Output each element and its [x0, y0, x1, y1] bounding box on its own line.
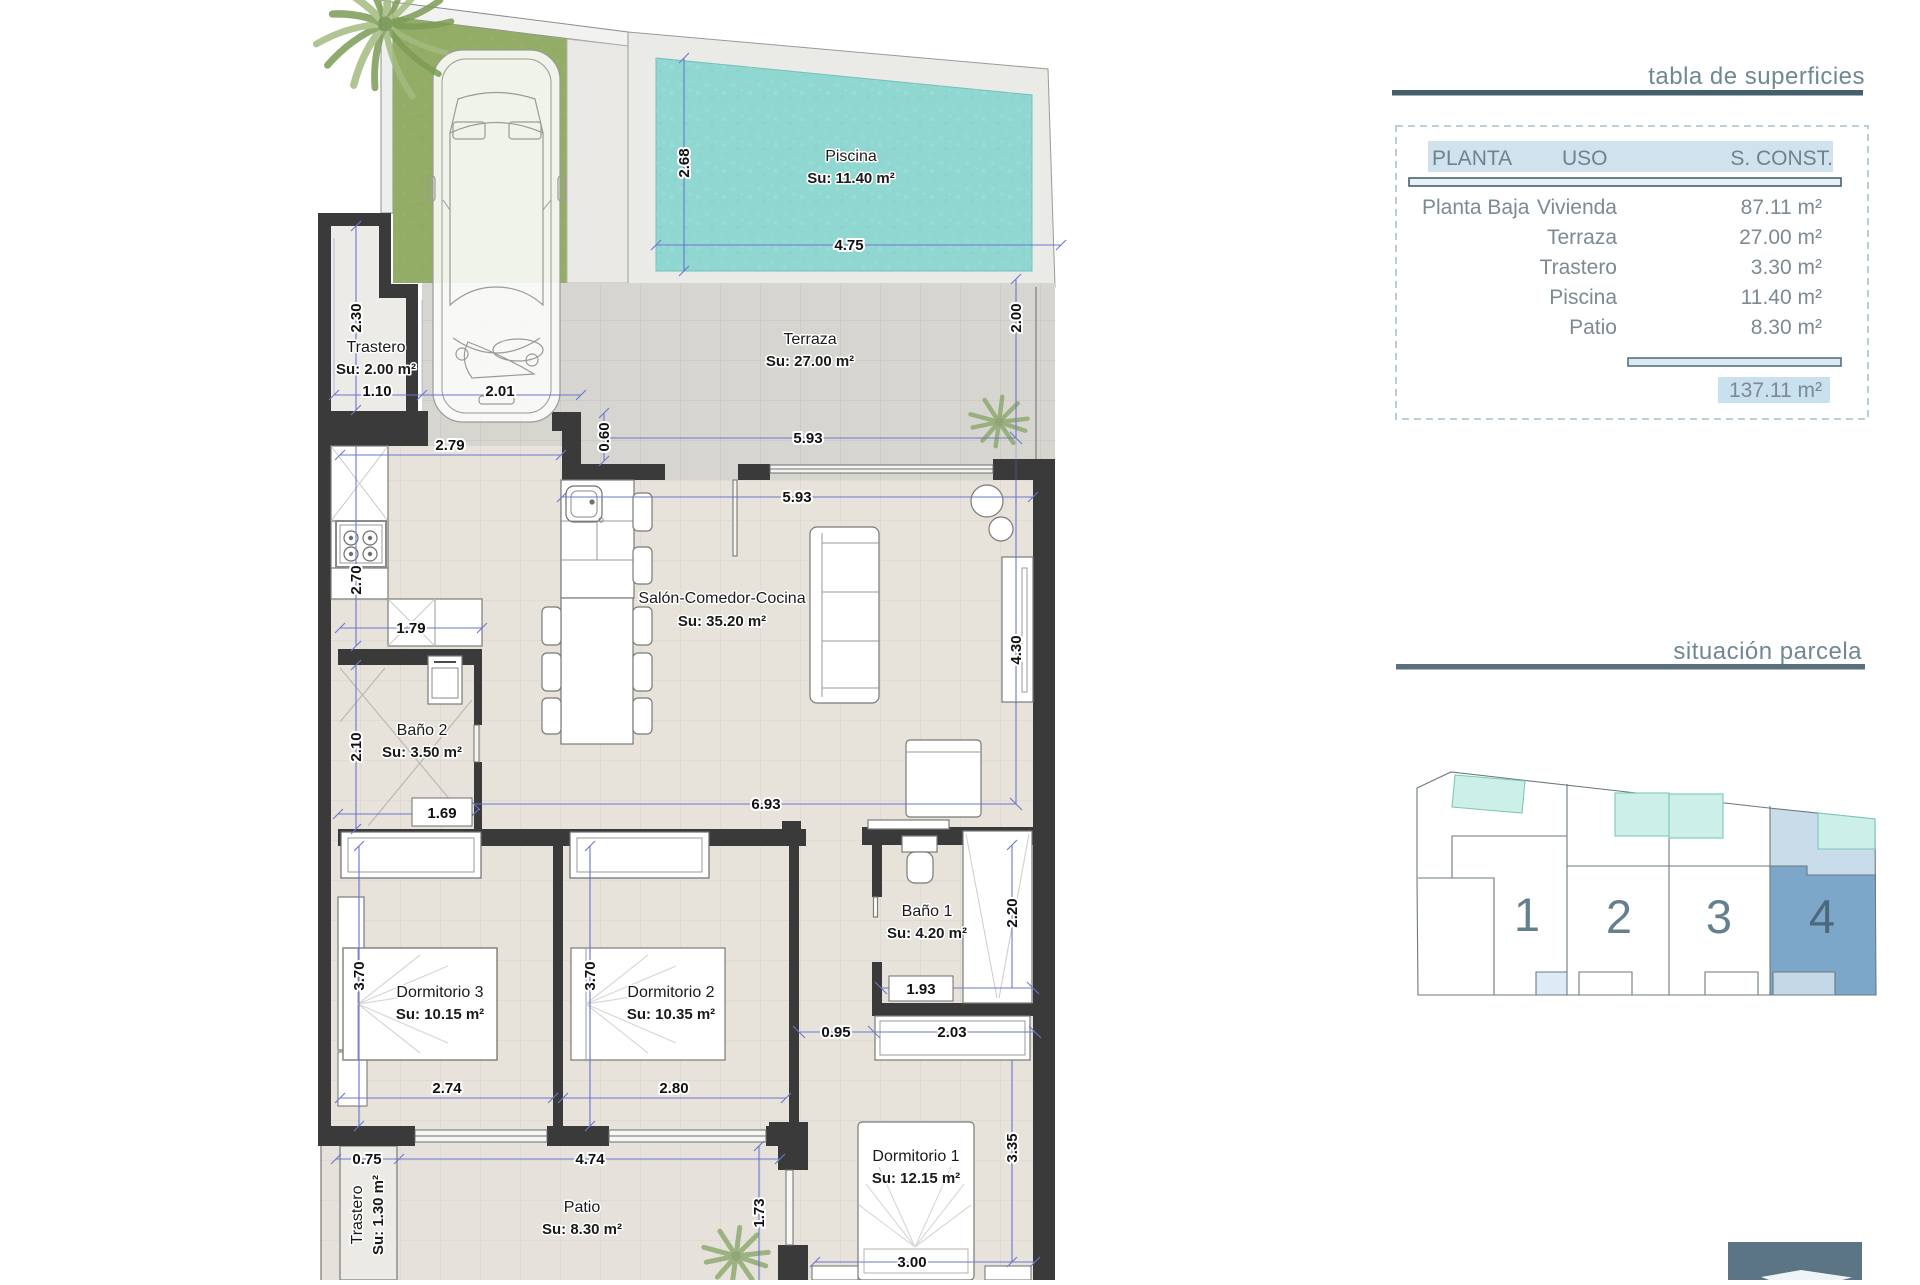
svg-text:Piscina: Piscina — [1549, 286, 1617, 309]
svg-text:4.75: 4.75 — [834, 237, 863, 254]
svg-text:Dormitorio 2: Dormitorio 2 — [627, 984, 714, 1001]
svg-text:27.00 m²: 27.00 m² — [1739, 226, 1822, 249]
svg-text:2: 2 — [1606, 890, 1632, 943]
svg-text:Dormitorio 3: Dormitorio 3 — [396, 984, 483, 1001]
svg-text:3.70: 3.70 — [582, 961, 599, 990]
svg-text:Trastero: Trastero — [1540, 256, 1617, 279]
svg-text:Baño 1: Baño 1 — [902, 903, 953, 920]
svg-text:Su: 10.35 m²: Su: 10.35 m² — [627, 1006, 715, 1023]
svg-text:0.75: 0.75 — [352, 1151, 381, 1168]
svg-text:Baño 2: Baño 2 — [397, 722, 448, 739]
svg-text:8.30 m²: 8.30 m² — [1751, 316, 1822, 339]
svg-text:2.20: 2.20 — [1004, 898, 1021, 927]
svg-text:6.93: 6.93 — [751, 796, 780, 813]
svg-text:Su: 12.15 m²: Su: 12.15 m² — [872, 1170, 960, 1187]
svg-text:2.01: 2.01 — [485, 383, 514, 400]
svg-text:Vivienda: Vivienda — [1537, 196, 1617, 219]
svg-text:2.00: 2.00 — [1008, 303, 1025, 332]
svg-text:Su: 10.15 m²: Su: 10.15 m² — [396, 1006, 484, 1023]
svg-text:Patio: Patio — [1569, 316, 1617, 339]
svg-text:Dormitorio 1: Dormitorio 1 — [872, 1148, 959, 1165]
svg-text:4.74: 4.74 — [575, 1151, 605, 1168]
svg-text:1: 1 — [1514, 888, 1540, 941]
svg-text:S. CONST.: S. CONST. — [1730, 147, 1833, 170]
svg-text:1.73: 1.73 — [751, 1198, 768, 1227]
svg-text:Salón-Comedor-Cocina: Salón-Comedor-Cocina — [638, 590, 805, 607]
svg-text:4: 4 — [1809, 890, 1835, 943]
svg-text:0.95: 0.95 — [821, 1024, 850, 1041]
svg-text:2.68: 2.68 — [676, 148, 693, 177]
svg-text:87.11 m²: 87.11 m² — [1741, 196, 1822, 219]
svg-text:tabla de superficies: tabla de superficies — [1648, 63, 1865, 90]
svg-text:Su: 4.20 m²: Su: 4.20 m² — [887, 925, 967, 942]
svg-text:1.69: 1.69 — [427, 805, 456, 822]
svg-text:Su: 3.50 m²: Su: 3.50 m² — [382, 744, 462, 761]
svg-text:Planta Baja: Planta Baja — [1422, 196, 1530, 219]
svg-text:2.10: 2.10 — [348, 732, 365, 761]
svg-text:Su: 11.40 m²: Su: 11.40 m² — [807, 170, 895, 187]
svg-text:2.70: 2.70 — [348, 565, 365, 594]
svg-text:situación parcela: situación parcela — [1673, 638, 1862, 665]
svg-text:3.30 m²: 3.30 m² — [1751, 256, 1822, 279]
svg-text:Trastero: Trastero — [347, 339, 406, 356]
svg-text:USO: USO — [1562, 147, 1608, 170]
svg-text:4.30: 4.30 — [1008, 635, 1025, 664]
svg-text:5.93: 5.93 — [782, 489, 811, 506]
svg-text:Su: 2.00 m²: Su: 2.00 m² — [336, 361, 416, 378]
svg-text:Su: 27.00 m²: Su: 27.00 m² — [766, 353, 854, 370]
svg-text:2.30: 2.30 — [348, 303, 365, 332]
svg-text:Terraza: Terraza — [783, 331, 836, 348]
svg-text:3.70: 3.70 — [351, 961, 368, 990]
svg-text:3: 3 — [1706, 890, 1732, 943]
svg-text:2.80: 2.80 — [659, 1080, 688, 1097]
svg-text:Patio: Patio — [564, 1199, 601, 1216]
svg-text:2.03: 2.03 — [937, 1024, 966, 1041]
svg-text:11.40 m²: 11.40 m² — [1741, 286, 1822, 309]
svg-text:Trastero: Trastero — [349, 1185, 366, 1244]
svg-text:Piscina: Piscina — [825, 148, 877, 165]
svg-text:Su: 8.30 m²: Su: 8.30 m² — [542, 1221, 622, 1238]
svg-text:2.74: 2.74 — [432, 1080, 462, 1097]
svg-text:5.93: 5.93 — [793, 430, 822, 447]
svg-text:Su: 1.30 m²: Su: 1.30 m² — [370, 1175, 387, 1255]
svg-text:Terraza: Terraza — [1547, 226, 1617, 249]
svg-text:1.93: 1.93 — [906, 981, 935, 998]
svg-text:3.35: 3.35 — [1004, 1133, 1021, 1162]
svg-text:PLANTA: PLANTA — [1432, 147, 1512, 170]
svg-text:137.11 m²: 137.11 m² — [1729, 379, 1822, 402]
svg-text:Su: 35.20 m²: Su: 35.20 m² — [678, 613, 766, 630]
svg-text:2.79: 2.79 — [435, 437, 464, 454]
svg-text:1.79: 1.79 — [396, 620, 425, 637]
svg-text:3.00: 3.00 — [897, 1254, 926, 1271]
svg-text:1.10: 1.10 — [362, 383, 391, 400]
svg-text:0.60: 0.60 — [596, 422, 613, 451]
